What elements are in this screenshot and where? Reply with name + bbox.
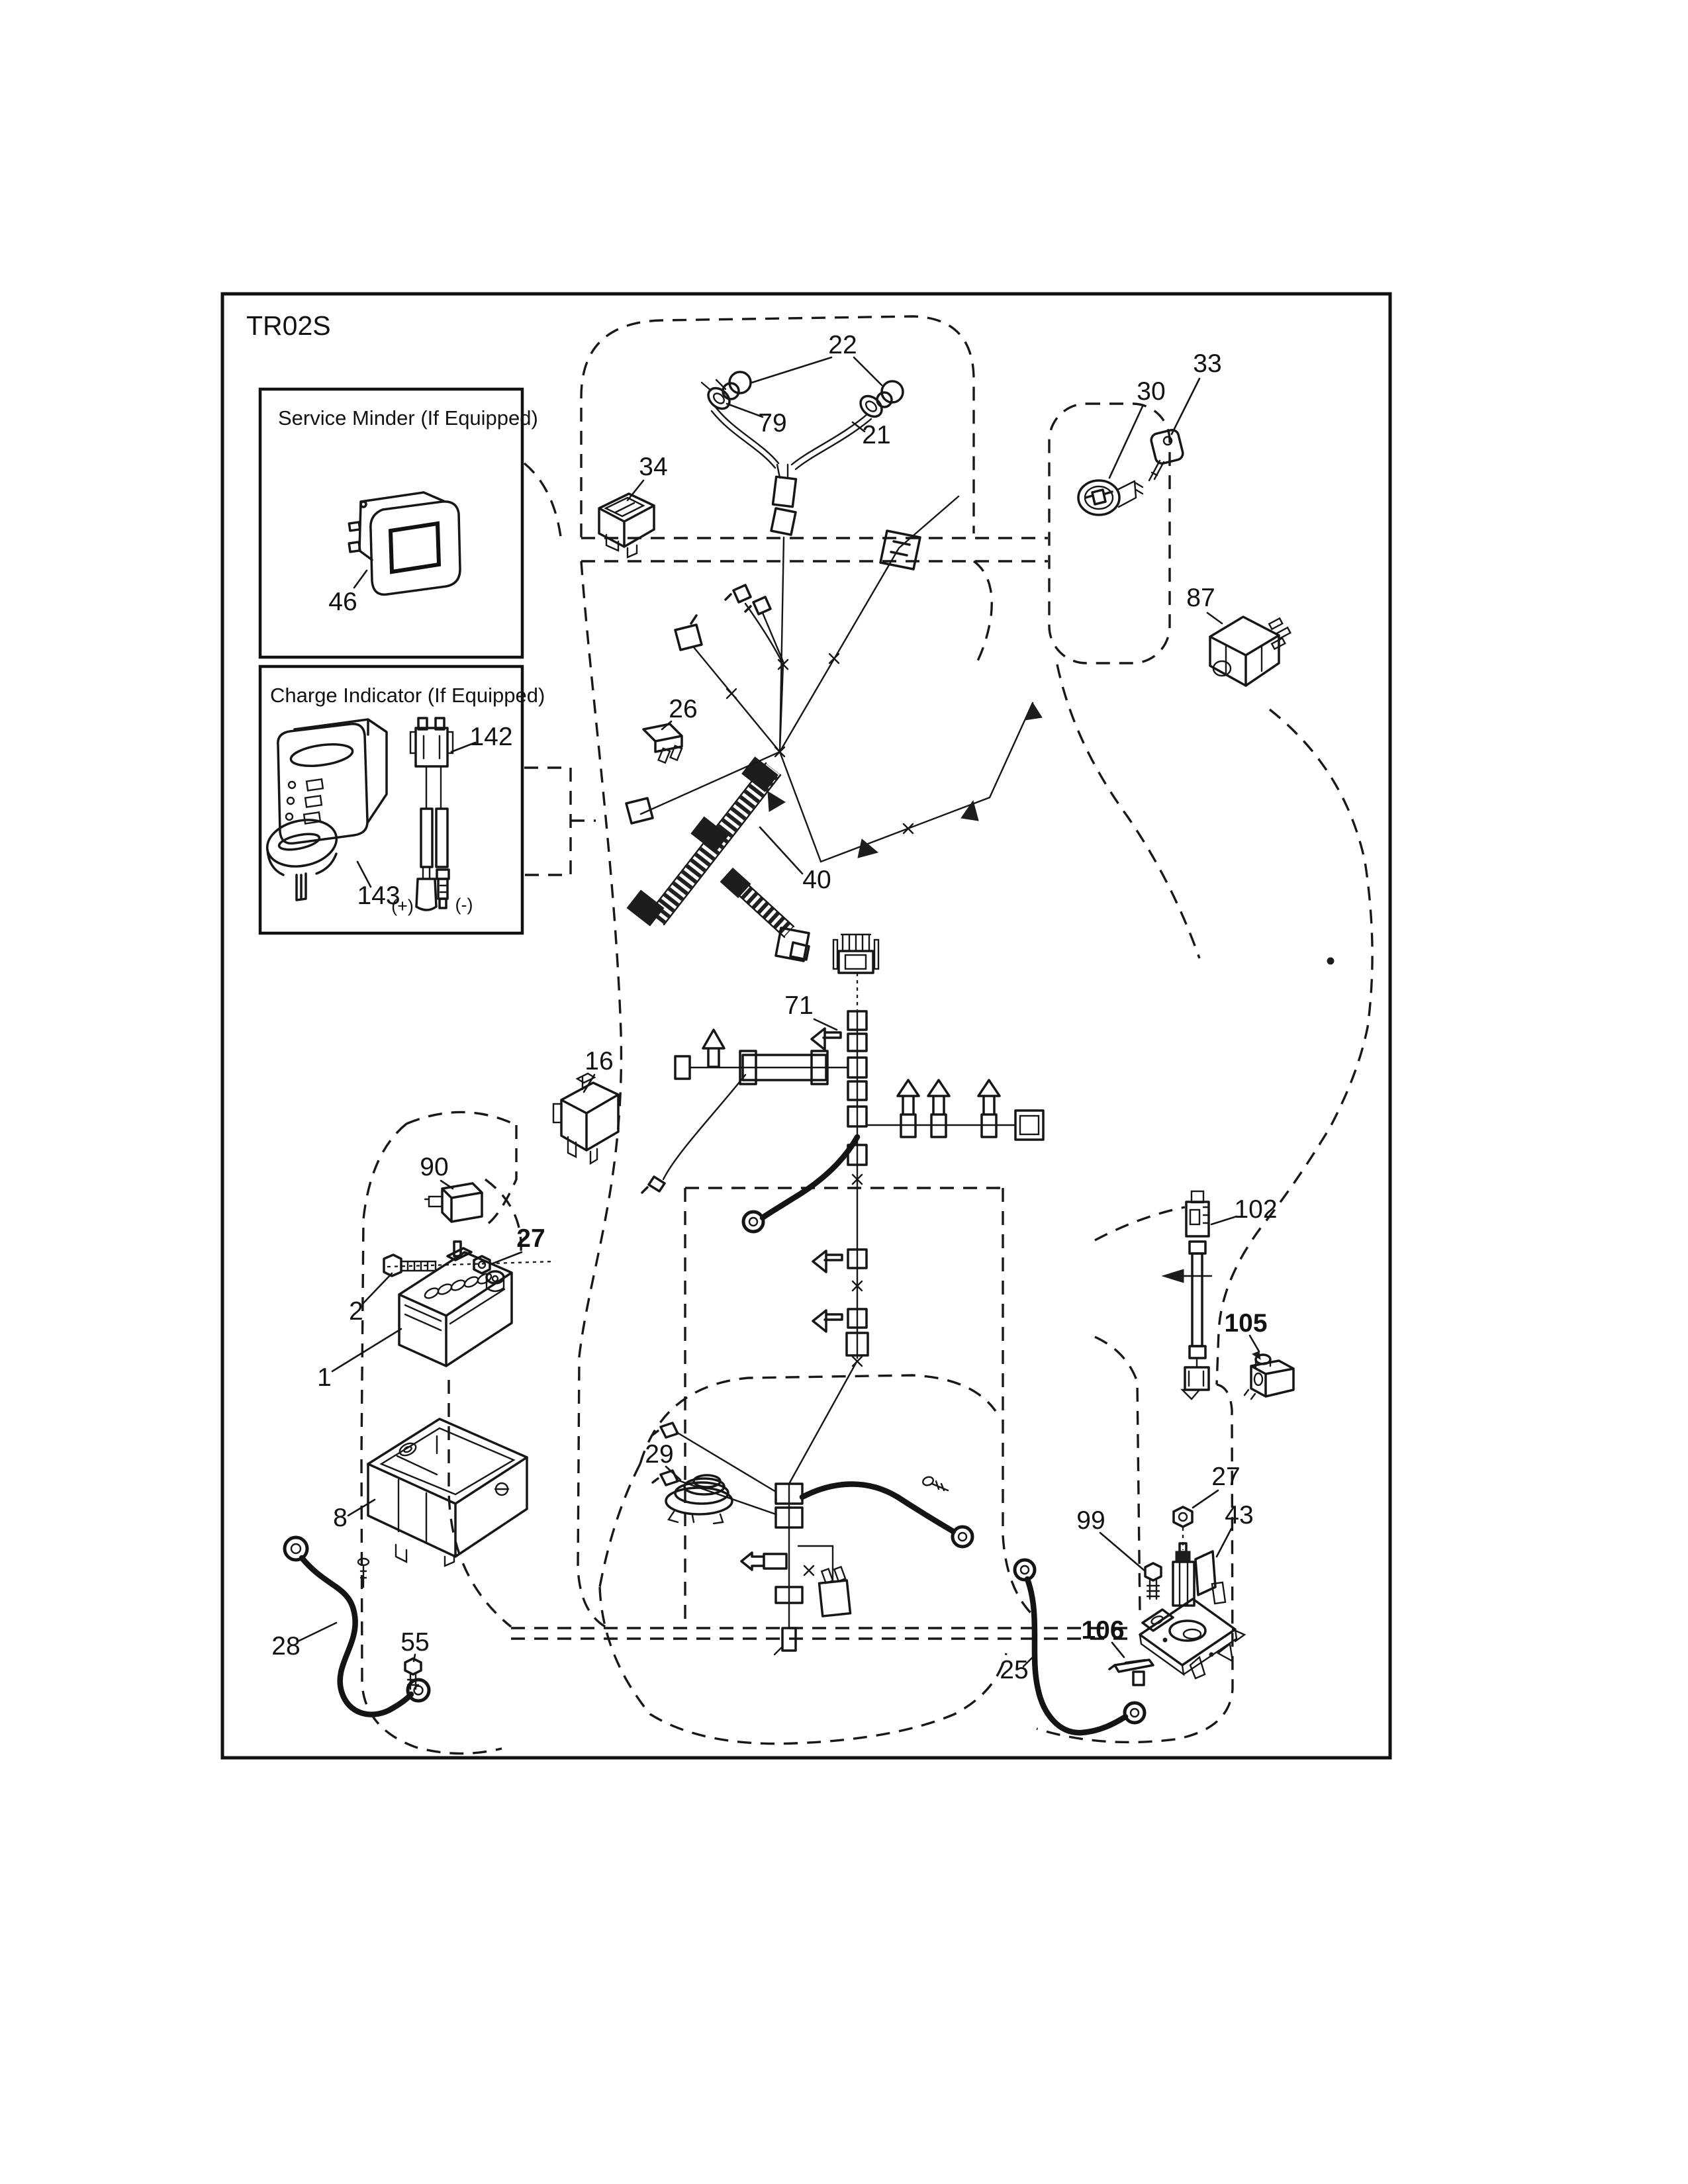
callout-34: 34: [639, 453, 667, 481]
harness-71-drawing: 71: [642, 934, 1043, 1358]
solenoid-left-dash: [1095, 1337, 1140, 1612]
callout-22: 22: [828, 331, 857, 359]
leader-87: [1207, 613, 1222, 623]
x-mark: [804, 1566, 814, 1575]
leader-2: [363, 1273, 392, 1304]
solenoid-group-drawing: 99 27 43 106: [1000, 1463, 1253, 1733]
leader-30: [1109, 406, 1143, 478]
relay-87-drawing: 87: [1186, 584, 1290, 686]
callout-29: 29: [645, 1440, 673, 1469]
arrow-connector-left: [813, 1251, 842, 1272]
wire-se: [780, 703, 1033, 862]
callout-25: 25: [1000, 1656, 1028, 1684]
ring-terminal: [1125, 1703, 1145, 1723]
dash-band-lower: [511, 1628, 1133, 1639]
wire-ne: [780, 496, 959, 752]
leader-33: [1172, 379, 1199, 434]
x-mark: [829, 654, 839, 663]
callout-27a: 27: [516, 1224, 545, 1253]
braid-end-connector: [776, 928, 809, 961]
charge-box-leader: [524, 768, 596, 875]
connector-nw: [675, 615, 702, 650]
bullet-plug-b: [745, 597, 771, 614]
arrow-connector-left: [741, 1553, 763, 1570]
left-body-wave: [578, 561, 621, 1628]
ring-terminal: [743, 1212, 763, 1232]
cable-25-drawing: [1015, 1560, 1145, 1733]
leader-102: [1211, 1216, 1237, 1224]
x-mark: [904, 824, 913, 833]
bullet-plug: [642, 1177, 665, 1193]
fuse-26-drawing: 26: [643, 695, 698, 763]
small-screw: [358, 1559, 369, 1565]
connector-102-drawing: 102: [1162, 1191, 1278, 1399]
dash-band-upper: [581, 538, 1048, 561]
callout-33: 33: [1193, 349, 1221, 378]
body-right-curve: [1057, 664, 1199, 958]
inline-arrow: [1162, 1269, 1184, 1283]
hour-meter-90-drawing: 90: [420, 1153, 482, 1222]
callout-99: 99: [1076, 1506, 1105, 1535]
nut-27b: [1174, 1507, 1192, 1527]
leader-43: [1217, 1529, 1231, 1557]
seat-switch-29-drawing: 29: [645, 1440, 732, 1524]
parts-diagram-page: TR02S Service Minder (If Equipped): [0, 0, 1688, 2184]
battery-body: [399, 1252, 512, 1366]
callout-55: 55: [400, 1628, 429, 1657]
callout-27b: 27: [1211, 1463, 1240, 1491]
charge-indicator-title: Charge Indicator (If Equipped): [270, 684, 545, 707]
switch-34-drawing: 34: [599, 453, 668, 557]
bullet-plug: [653, 1471, 678, 1485]
wire-arrow: [1025, 703, 1042, 720]
callout-43: 43: [1225, 1501, 1253, 1529]
frame-rect: [685, 1188, 1034, 1627]
callout-26: 26: [669, 695, 697, 723]
battery-group-drawing: 27 2 1: [317, 1224, 555, 1392]
interlock-105-drawing: 105: [1224, 1309, 1293, 1399]
connector-102-dash: [1095, 1207, 1185, 1240]
callout-28: 28: [271, 1632, 300, 1661]
lower-harness-stack-drawing: [653, 1357, 972, 1655]
callout-90: 90: [420, 1153, 448, 1181]
fuse-tail-wire: [663, 1075, 745, 1179]
outline-dot: [1327, 958, 1334, 964]
ground-cable-28-drawing: 28 55: [271, 1537, 429, 1715]
callout-2: 2: [349, 1297, 363, 1326]
callout-46: 46: [328, 588, 357, 616]
solenoid-right-dash: [1037, 1385, 1233, 1742]
terminal-positive-label: (+): [391, 896, 414, 916]
socket-right: [857, 392, 886, 420]
stem-jog: [789, 1361, 857, 1484]
battery-blob: [361, 1112, 516, 1753]
arrow-up: [703, 1030, 724, 1067]
headlight-connector: [773, 477, 796, 506]
headlight-harness-drawing: 22 79 21: [702, 331, 903, 535]
service-box-leader: [524, 463, 561, 541]
band-diamond-connector: [880, 531, 920, 569]
callout-79: 79: [758, 409, 786, 437]
service-minder-title: Service Minder (If Equipped): [278, 406, 538, 430]
x-mark: [727, 689, 736, 698]
charge-indicator-inset: Charge Indicator (If Equipped) 143: [260, 666, 545, 933]
leader-22: [752, 357, 882, 385]
arrow-connector-left: [813, 1310, 842, 1332]
callout-30: 30: [1137, 377, 1165, 406]
leader-105: [1250, 1336, 1259, 1351]
ground-wire: [763, 1137, 857, 1218]
callout-1: 1: [317, 1363, 332, 1392]
leader-28: [298, 1623, 336, 1641]
stack-ground-wire: [802, 1484, 953, 1531]
battery-strap: [447, 1242, 471, 1260]
engine-right-outline: [1217, 709, 1372, 1385]
arrow-up: [978, 1080, 1000, 1113]
bolt-99-head: [1145, 1563, 1161, 1580]
callout-8: 8: [333, 1504, 348, 1532]
callout-21: 21: [862, 421, 890, 449]
footwell-curve: [449, 1380, 511, 1627]
diagram-code: TR02S: [246, 310, 331, 341]
leader-1: [332, 1329, 401, 1371]
ring-terminal: [1015, 1560, 1035, 1580]
switch-16-drawing: 16: [553, 1047, 618, 1163]
battery-blob-inner: [485, 1125, 521, 1251]
service-minder-inset: Service Minder (If Equipped) 46: [260, 389, 538, 657]
small-screw: [921, 1476, 934, 1487]
callout-106: 106: [1081, 1616, 1124, 1645]
two-prong-plug: [798, 1546, 850, 1616]
braid-lower: [740, 887, 789, 932]
arrow-up: [898, 1080, 919, 1113]
terminal-negative-label: (-): [455, 895, 473, 915]
diagram-canvas: TR02S Service Minder (If Equipped): [0, 0, 1688, 2184]
ring-terminal: [953, 1527, 972, 1547]
arrow-up: [928, 1080, 949, 1113]
leader-40: [760, 827, 802, 874]
arrow-connector-left: [812, 1028, 841, 1050]
callout-40: 40: [802, 866, 831, 894]
bullet-plug-a: [726, 585, 751, 602]
callout-102: 102: [1234, 1195, 1277, 1224]
callout-71: 71: [784, 991, 813, 1020]
leader-27b: [1193, 1490, 1218, 1508]
wire-nw: [694, 647, 780, 752]
callout-105: 105: [1224, 1309, 1267, 1338]
braid-arrow: [768, 792, 785, 811]
seat-pan-blob: [600, 1375, 1006, 1744]
leader-106: [1112, 1643, 1124, 1657]
cable-28: [302, 1558, 411, 1715]
hood-right-lower: [974, 561, 992, 668]
callout-16: 16: [585, 1047, 613, 1075]
callout-87: 87: [1186, 584, 1215, 612]
callout-142: 142: [469, 723, 512, 751]
bullet-plug: [653, 1423, 678, 1437]
leader-79: [727, 404, 763, 417]
wire-arrow: [961, 801, 978, 821]
